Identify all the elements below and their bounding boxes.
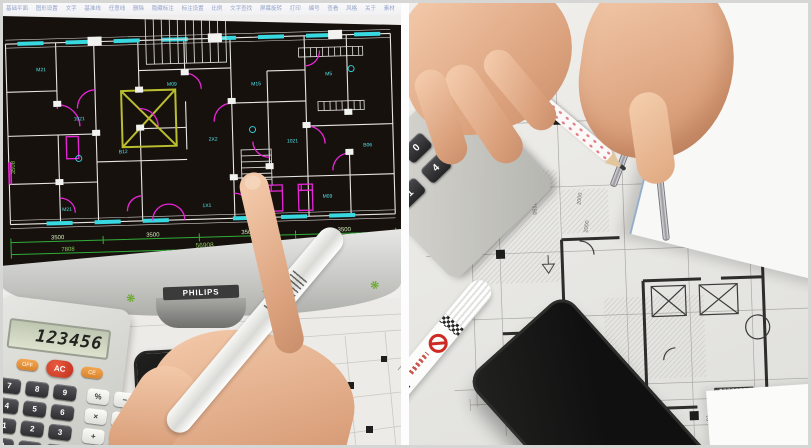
cad-floorplan: M21 1021 B12 M09 2X2 M15 1021 M5 B06 M21… (0, 2, 401, 265)
calculator-off-key: OFF (16, 358, 39, 372)
cad-menu-item: 关于 (365, 4, 376, 12)
calculator-key: 3 (48, 423, 73, 441)
dim-left-label: 3508 (11, 160, 17, 174)
calculator-number-keys: 789456123000. (0, 377, 84, 448)
calculator-key: × (84, 408, 108, 426)
calculator-key: . (45, 443, 70, 448)
cad-menu-item: 图形设置 (36, 4, 58, 12)
room-label: M09 (167, 82, 177, 88)
cad-menu-item: 屏幕旋转 (260, 4, 282, 12)
monitor-stand (156, 298, 246, 328)
photo-composite: 基础平面图形设置文字基准线任意线删除隐藏标注标注设置比例文字查找屏幕旋转打印编号… (0, 0, 811, 448)
calculator-key: 7 (0, 377, 22, 395)
cad-walls (5, 33, 395, 224)
cad-menu-bar: 基础平面图形设置文字基准线任意线删除隐藏标注标注设置比例文字查找屏幕旋转打印编号… (0, 0, 401, 15)
cad-menu-item: 素材 (384, 4, 395, 12)
room-label: M21 (62, 207, 72, 213)
calculator-key: 6 (50, 404, 75, 422)
calculator-display-value: 123456 (34, 326, 103, 354)
calculator-key: 8 (25, 380, 50, 398)
room-label: M09 (323, 194, 333, 200)
cad-menu-item: 删除 (133, 4, 144, 12)
cad-menu-item: 基础平面 (6, 4, 28, 12)
left-photo-cad-monitor: 基础平面图形设置文字基准线任意线删除隐藏标注标注设置比例文字查找屏幕旋转打印编号… (0, 0, 401, 448)
room-label: M5 (325, 71, 332, 77)
dim-label: 3500 (146, 232, 160, 238)
calculator-ce-key: CE (80, 366, 103, 380)
calculator-key: 1 (409, 177, 427, 209)
room-label: M21 (36, 67, 46, 73)
cad-menu-item: 打印 (290, 4, 301, 12)
calculator-key: 4 (0, 397, 19, 415)
room-label: B06 (363, 142, 372, 148)
calculator-display: 123456 (6, 318, 111, 360)
cad-fixtures (73, 66, 356, 162)
cad-menu-item: 文字 (66, 4, 77, 12)
cad-hatch-strips (298, 46, 364, 111)
sheet-stack-corner (706, 379, 811, 448)
cad-menu-item: 比例 (211, 4, 222, 12)
room-label: 1021 (287, 138, 299, 144)
calculator-key: 00 (17, 440, 42, 448)
cad-menu-item: 文字查找 (230, 4, 252, 12)
calculator-ac-key: AC (45, 359, 74, 379)
cad-elevator-shaft (121, 90, 177, 148)
room-label: 1021 (74, 116, 86, 122)
room-label: 2X2 (209, 137, 218, 143)
fingernail (243, 174, 262, 191)
cad-menu-item: 标注设置 (182, 4, 204, 12)
cad-menu-item: 任意线 (109, 4, 126, 12)
monitor-brand-badge: PHILIPS (163, 285, 239, 301)
calculator-key: + (81, 428, 105, 446)
calculator-key: 2 (20, 420, 45, 438)
room-label: B12 (119, 149, 128, 155)
calculator-key: 1 (0, 417, 17, 435)
calculator-key: 0 (409, 132, 433, 164)
room-label: M15 (251, 81, 261, 87)
cad-menu-item: 查看 (327, 4, 338, 12)
photo-divider (401, 0, 409, 448)
cad-menu-item: 隐藏标注 (152, 4, 174, 12)
cad-menu-item: 风格 (346, 4, 357, 12)
right-photo-blueprint-desk: 2400 9000 30700 05181310 2000 2000 0014 (409, 0, 811, 448)
cad-menu-item: 编号 (309, 4, 320, 12)
calculator-key: 9 (53, 384, 78, 402)
dim-side-label: 7808 (61, 247, 75, 253)
marker-red-text (409, 352, 429, 375)
dim-label: 3500 (51, 235, 65, 241)
calculator-key: 0 (0, 437, 14, 448)
calculator-key: 5 (22, 400, 47, 418)
room-label: 1X1 (202, 203, 211, 209)
cad-menu-item: 基准线 (84, 4, 101, 12)
calculator-key: % (86, 388, 110, 406)
